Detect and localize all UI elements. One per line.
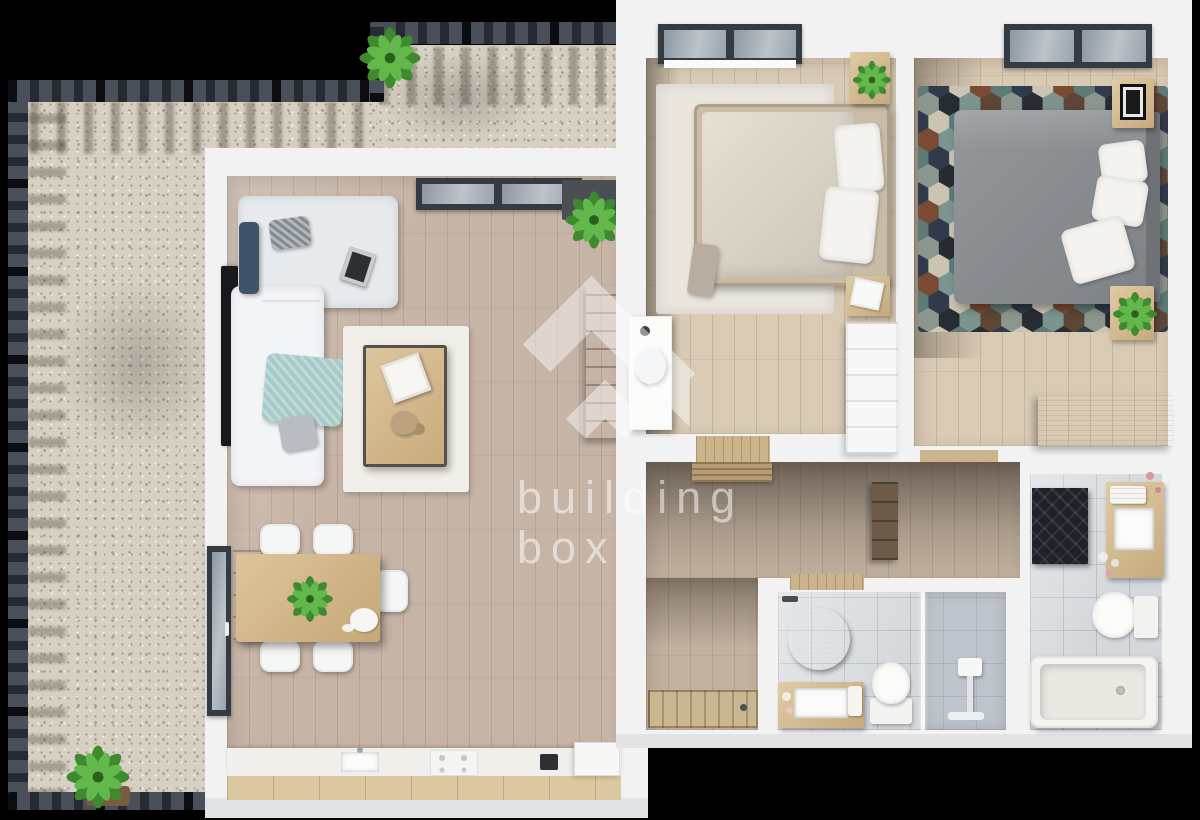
soap-dots xyxy=(782,692,791,701)
picture-frame xyxy=(1120,84,1146,120)
building-box-logo xyxy=(515,260,711,466)
bedroom2-window xyxy=(1004,24,1152,68)
living-room-window xyxy=(416,178,582,210)
cosmetics xyxy=(1146,472,1154,480)
gray-pillow xyxy=(277,413,318,453)
plates xyxy=(350,608,378,632)
cooktop xyxy=(430,750,478,776)
plant-icon xyxy=(852,56,892,104)
bathroom1-door-threshold xyxy=(790,574,864,590)
kitchen-sink xyxy=(341,752,379,772)
balcony-door xyxy=(207,546,231,716)
towel-hook xyxy=(782,596,798,602)
window-glass xyxy=(1082,30,1146,62)
terrace-railing xyxy=(8,80,380,102)
faucet xyxy=(357,747,363,753)
tray xyxy=(391,411,417,435)
window-glass xyxy=(422,184,494,204)
vanity-towels xyxy=(1110,486,1146,504)
vanity-sink xyxy=(794,688,848,718)
toilet-tank xyxy=(1134,596,1158,638)
plant-icon xyxy=(50,744,146,810)
vanity-sink xyxy=(1114,508,1154,550)
vanity-towel xyxy=(848,686,862,716)
dining-chair xyxy=(313,524,353,556)
kitchen-counter xyxy=(227,748,621,776)
bathtub-drain xyxy=(1116,686,1125,695)
shower-glass xyxy=(921,592,925,730)
window-glass xyxy=(664,30,726,58)
door-glass xyxy=(212,552,226,710)
floor-plan-render: building box xyxy=(0,0,1200,820)
plant-icon xyxy=(564,184,624,256)
railing-shadow xyxy=(30,102,378,154)
pattern-pillow xyxy=(268,215,312,250)
plant-icon xyxy=(1112,288,1158,340)
toilet-bowl xyxy=(872,662,910,704)
small-appliance xyxy=(540,754,558,770)
candles xyxy=(1098,552,1108,562)
bedroom2-door-threshold xyxy=(920,450,998,462)
bed1-pillow xyxy=(818,185,879,264)
shower-head xyxy=(958,658,982,676)
bedroom1-window xyxy=(658,24,802,64)
wall-face xyxy=(205,798,648,818)
dining-chair xyxy=(260,640,300,672)
toilet-bowl xyxy=(1092,592,1136,638)
wall-face xyxy=(616,734,1192,748)
kitchen-cabinet-front xyxy=(227,776,621,800)
round-rug xyxy=(788,608,850,670)
sofa-seam xyxy=(262,300,320,302)
watermark-line1: building xyxy=(517,472,744,524)
shower-faucet xyxy=(948,712,984,720)
door-knob xyxy=(740,704,747,711)
coat-rack xyxy=(872,482,898,560)
fridge xyxy=(574,742,620,776)
dark-rug xyxy=(1032,488,1088,564)
window-glass xyxy=(734,30,796,58)
dresser xyxy=(1038,394,1172,446)
bed1-pillow xyxy=(833,122,885,194)
navy-cushion xyxy=(239,222,259,294)
terrace-shade xyxy=(58,280,218,450)
bed2-headboard xyxy=(1146,112,1160,302)
door-handle xyxy=(225,622,229,636)
window-sill xyxy=(664,60,796,68)
plant-icon xyxy=(358,26,422,90)
watermark-line2: box xyxy=(517,522,617,574)
terrace-railing xyxy=(8,82,28,804)
dining-chair xyxy=(313,640,353,672)
dining-chair xyxy=(260,524,300,556)
bathtub-basin xyxy=(1040,664,1146,720)
plant-icon xyxy=(286,574,334,624)
railing-shadow xyxy=(28,104,66,798)
watermark: building box xyxy=(515,260,735,590)
wardrobe xyxy=(846,322,898,454)
papers xyxy=(849,277,884,311)
window-glass xyxy=(1010,30,1074,62)
